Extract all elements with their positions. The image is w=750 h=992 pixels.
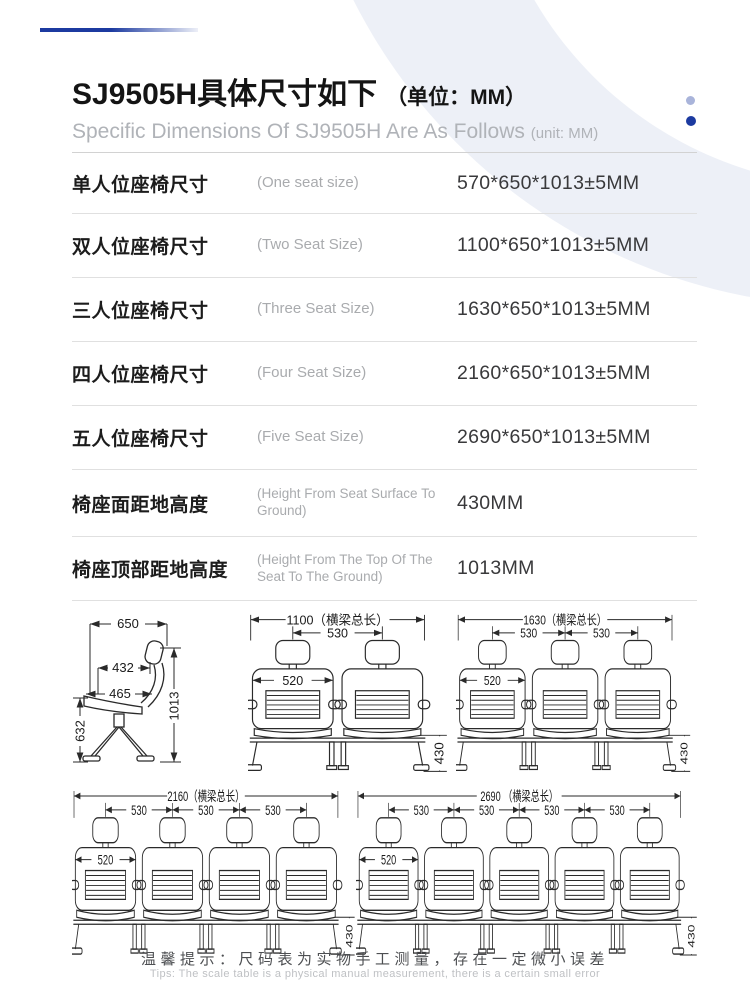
dim-beam: 2690 （横梁总长） <box>480 788 558 804</box>
dim-depth: 650 <box>117 616 139 631</box>
dim-seat-height: 430 <box>687 924 697 948</box>
dim-total-height: 1013 <box>167 692 182 721</box>
dimensions: 1630（横梁总长） 530 530 520 430 <box>458 612 690 771</box>
dim-pitch: 530 <box>610 803 626 818</box>
tip-text-en: Tips: The scale table is a physical manu… <box>0 968 750 980</box>
dim-pitch: 530 <box>414 803 430 818</box>
dim-pitch: 530 <box>520 625 537 641</box>
dim-pitch: 530 <box>265 802 281 818</box>
dim-pitch: 530 <box>593 625 610 641</box>
chairs <box>356 818 684 954</box>
chairs <box>72 818 342 954</box>
dim-pitch: 530 <box>198 802 214 818</box>
dim-back-width: 520 <box>484 673 501 689</box>
two-seat-front-drawing: 1100（横梁总长） 530 520 430 <box>248 612 454 778</box>
dim-back-width: 520 <box>98 852 114 868</box>
sj9505h-dimension-sheet: SJ9505H具体尺寸如下（单位：MM） Specific Dimensions… <box>0 0 750 992</box>
tip-text-zh: 温馨提示：尺码表为实物手工测量，存在一定微小误差 <box>0 948 750 969</box>
dimensions: 2690 （横梁总长） 530 530 530 530 520 <box>358 788 697 955</box>
one-seat-side-drawing: 650 432 465 1013 <box>70 610 260 770</box>
dim-pitch: 530 <box>131 802 147 818</box>
dim-seat-height: 430 <box>432 742 447 764</box>
dim-seat-width: 465 <box>109 686 131 701</box>
dimensions: 1100（横梁总长） 530 520 430 <box>251 612 447 771</box>
chairs <box>456 640 676 770</box>
dim-seat-height: 430 <box>344 924 355 948</box>
dim-pitch: 530 <box>327 625 348 640</box>
dim-back-width: 520 <box>282 673 303 688</box>
three-seat-front-drawing: 1630（横梁总长） 530 530 520 430 <box>456 612 696 778</box>
four-seat-front-drawing: 2160（横梁总长） 530 530 530 520 430 <box>72 788 360 962</box>
dim-pitch: 530 <box>544 803 560 818</box>
dim-pitch: 530 <box>479 803 495 818</box>
dim-seat-height: 430 <box>678 742 690 765</box>
side-dimensions: 650 432 465 1013 <box>73 616 182 762</box>
dim-back-height: 632 <box>73 720 88 742</box>
chairs <box>248 640 430 770</box>
five-seat-front-drawing: 2690 （横梁总长） 530 530 530 530 520 <box>356 788 702 962</box>
technical-drawings: 650 432 465 1013 <box>0 0 750 992</box>
dimensions: 2160（横梁总长） 530 530 530 520 430 <box>74 788 355 955</box>
dim-seat-depth: 432 <box>112 660 134 675</box>
dim-back-width: 520 <box>381 853 397 868</box>
